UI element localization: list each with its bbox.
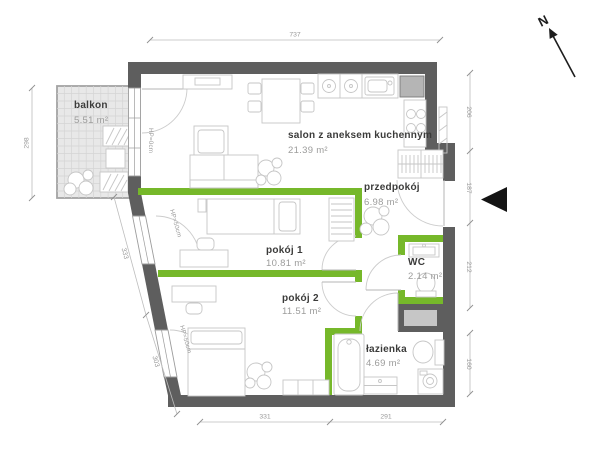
washing-machine xyxy=(418,369,443,394)
room1-nightstand xyxy=(198,199,206,212)
tv-sideboard xyxy=(183,75,232,89)
dim-right-1: 206 xyxy=(465,106,472,118)
floor-plan: balkon 5.51 m² salon z aneksem kuchennym… xyxy=(0,0,600,462)
dim-bottom-left: 331 xyxy=(259,414,271,421)
area-lazienka: 4.69 m² xyxy=(366,358,400,369)
entrance-marker-icon xyxy=(481,187,507,212)
hp-balcony: HP=0cm xyxy=(147,128,154,153)
room1-desk xyxy=(180,238,228,267)
balcony-door-swing xyxy=(142,88,187,133)
dim-right-2: 187 xyxy=(465,182,472,194)
bathtub xyxy=(334,334,364,395)
dim-right-4: 160 xyxy=(465,358,472,370)
floor-plan-page: balkon 5.51 m² salon z aneksem kuchennym… xyxy=(0,0,600,462)
hallway-wardrobe xyxy=(398,150,443,178)
bathroom-door xyxy=(360,293,398,331)
armchair xyxy=(194,126,228,157)
label-balkon: balkon xyxy=(74,100,108,111)
hallway-plant xyxy=(360,206,389,235)
label-pokoj1: pokój 1 xyxy=(266,245,303,256)
kitchen-sink xyxy=(365,77,394,95)
sofa xyxy=(190,155,258,188)
dim-left: 298 xyxy=(24,137,31,149)
balcony-mat-1 xyxy=(103,126,129,146)
bathroom-toilet xyxy=(413,340,444,365)
balcony-mat-2 xyxy=(100,172,128,192)
room1-furniture xyxy=(180,198,354,267)
room1-wardrobe xyxy=(329,198,354,241)
fridge xyxy=(400,76,424,97)
balcony-table xyxy=(106,149,125,168)
wc-door xyxy=(366,255,401,290)
area-pokoj1: 10.81 m² xyxy=(266,258,306,269)
area-balkon: 5.51 m² xyxy=(74,115,108,126)
dim-bottom-right: 291 xyxy=(380,414,392,421)
balcony-door-window xyxy=(129,88,141,176)
label-lazienka: łazienka xyxy=(366,344,407,355)
area-wc: 2.14 m² xyxy=(408,271,442,282)
label-salon: salon z aneksem kuchennym xyxy=(288,130,432,141)
salon-plant xyxy=(256,158,282,185)
room2-door xyxy=(322,282,356,316)
room2-dresser xyxy=(283,380,329,395)
north-arrow: N xyxy=(536,12,575,77)
area-pokoj2: 11.51 m² xyxy=(282,306,321,317)
label-pokoj2: pokój 2 xyxy=(282,293,319,304)
room2-desk xyxy=(172,286,216,314)
area-salon: 21.39 m² xyxy=(288,145,328,156)
area-przedpokoj: 6.98 m² xyxy=(364,197,398,208)
dim-right-3: 212 xyxy=(465,261,472,273)
bathroom-cabinet xyxy=(364,377,397,394)
utility-shaft xyxy=(398,304,443,332)
room1-window xyxy=(133,216,156,264)
dim-top: 737 xyxy=(289,32,301,39)
room2-plant xyxy=(245,362,272,389)
dim-slant-upper: 333 xyxy=(120,247,130,260)
north-label: N xyxy=(536,12,551,30)
room2-bed xyxy=(188,328,245,396)
label-przedpokoj: przedpokój xyxy=(364,182,420,193)
room1-bed xyxy=(207,199,300,234)
dining-table xyxy=(248,79,314,123)
label-wc: WC xyxy=(408,257,425,268)
wc-sink xyxy=(409,244,439,257)
